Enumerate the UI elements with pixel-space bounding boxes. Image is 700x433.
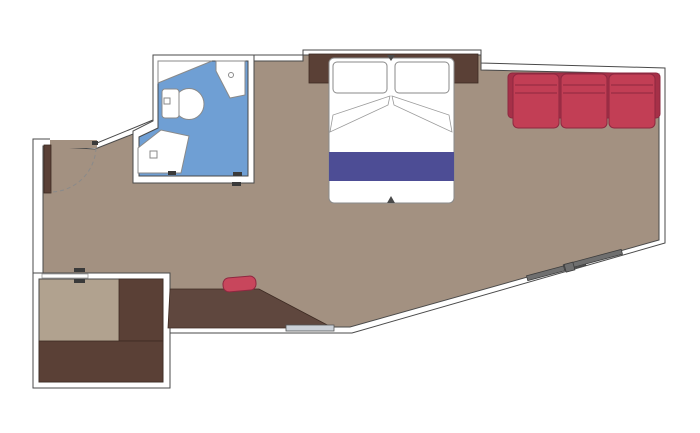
floor-plan-svg	[0, 0, 700, 433]
sofa-3-seat	[508, 73, 660, 128]
shower-drain-icon	[229, 73, 234, 78]
sofa-cushion-2	[561, 74, 607, 128]
balcony-door-leaf	[42, 274, 88, 278]
bathroom-door-mark-outer	[232, 182, 241, 186]
sofa-cushion-3	[609, 74, 655, 128]
balcony-bench-bottom	[39, 341, 163, 382]
entrance-door-leaf	[44, 145, 51, 193]
pillow-right	[395, 62, 449, 93]
bathroom-door-mark-inner	[233, 172, 242, 176]
bed-runner	[329, 152, 454, 181]
threshold-bar	[286, 325, 334, 331]
floor-plan-page	[0, 0, 700, 433]
sofa-cushion-1	[513, 74, 559, 128]
vanity-faucet-icon	[150, 151, 157, 158]
balcony-door-handle-mark-top	[74, 268, 85, 272]
vanity-door-mark	[168, 171, 176, 175]
balcony-door-handle-mark-bottom	[74, 279, 85, 283]
entrance-jamb-mark	[92, 141, 98, 145]
desk-chair	[222, 276, 256, 293]
pillow-left	[333, 62, 387, 93]
toilet-flush-button	[164, 98, 170, 104]
entrance-floor-patch	[50, 140, 97, 148]
sliding-door-connector	[564, 262, 575, 272]
balcony-bench-side	[119, 279, 163, 341]
